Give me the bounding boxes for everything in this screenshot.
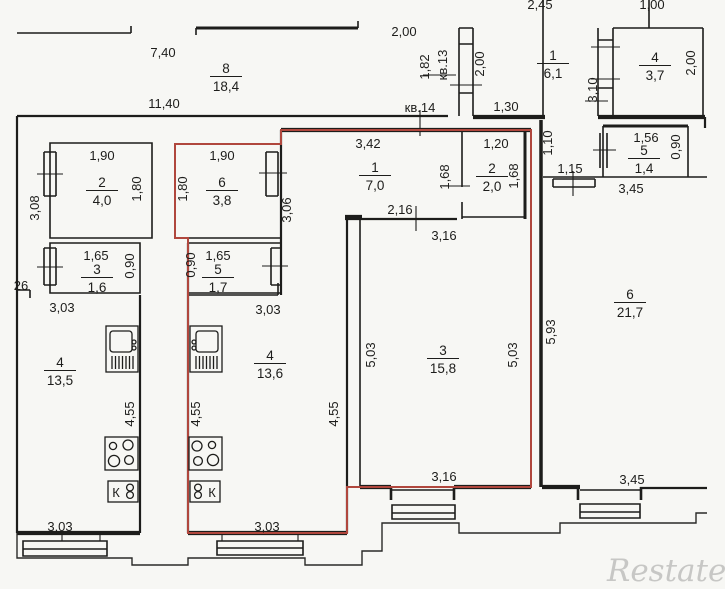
- room-area: 7,0: [366, 178, 385, 193]
- dimension-label: 3,06: [279, 197, 294, 222]
- dimension-label: 3,16: [431, 469, 456, 484]
- dimension-label: 1,68: [437, 164, 452, 189]
- dimension-label: 1,20: [483, 136, 508, 151]
- dimension-label: 3,03: [49, 300, 74, 315]
- dimension-label: 2,00: [472, 51, 487, 76]
- room-number: 1: [549, 48, 557, 63]
- dimension-label: 1,90: [89, 148, 114, 163]
- dimension-label: 3,45: [618, 181, 643, 196]
- floor-plan: 7,4011,402,002,451,00кв.141,301,901,903,…: [0, 0, 725, 589]
- room-area: 13,5: [47, 373, 73, 388]
- dimension-label: 2,00: [683, 50, 698, 75]
- room-area: 2,0: [483, 179, 502, 194]
- room-number: 8: [222, 61, 230, 76]
- room-number: 4: [651, 50, 659, 65]
- room-area: 6,1: [544, 66, 563, 81]
- room-number: 4: [56, 355, 64, 370]
- apartment-label-kv14: кв.14: [405, 100, 436, 115]
- dimension-label: 1,90: [209, 148, 234, 163]
- room-area: 15,8: [430, 361, 456, 376]
- room-number: 1: [371, 160, 379, 175]
- dimension-label: 3,16: [431, 228, 456, 243]
- room-number: 2: [98, 175, 106, 190]
- dimension-label: 2,16: [387, 202, 412, 217]
- watermark-text: Restate: [606, 553, 725, 589]
- apartment-label-kv13: кв.13: [435, 50, 450, 81]
- plan-background: [0, 0, 725, 589]
- dimension-label: 3,08: [27, 195, 42, 220]
- dimension-label: 1,80: [129, 176, 144, 201]
- room-number: 6: [626, 287, 634, 302]
- room-area: 21,7: [617, 305, 643, 320]
- room-number: 2: [488, 161, 496, 176]
- dimension-label: 1,65: [83, 248, 108, 263]
- dimension-label: 3,03: [47, 519, 72, 534]
- dimension-label: 4,55: [326, 401, 341, 426]
- dimension-label: 3,45: [619, 472, 644, 487]
- dimension-label: 4,55: [122, 401, 137, 426]
- dimension-label: 5,03: [363, 342, 378, 367]
- room-area: 3,7: [646, 68, 665, 83]
- dimension-label: 5,03: [505, 342, 520, 367]
- dimension-label: 1,68: [506, 163, 521, 188]
- dimension-label: 3,42: [355, 136, 380, 151]
- room-area: 3,8: [213, 193, 232, 208]
- dimension-label: 1,65: [205, 248, 230, 263]
- dimension-label: 1,10: [540, 130, 555, 155]
- room-number: 3: [439, 343, 447, 358]
- room-area: 18,4: [213, 79, 240, 94]
- room-number: 3: [93, 262, 101, 277]
- dimension-label: 4,55: [188, 401, 203, 426]
- dimension-label: 0,90: [183, 252, 198, 277]
- dimension-label: 11,40: [148, 96, 180, 111]
- floor-plan-svg: 7,4011,402,002,451,00кв.141,301,901,903,…: [0, 0, 725, 589]
- dimension-label: 0,90: [668, 134, 683, 159]
- room-number: 4: [266, 348, 274, 363]
- kitchen-sink-label: К: [112, 485, 120, 500]
- room-area: 13,6: [257, 366, 283, 381]
- dimension-label: 1,00: [639, 0, 664, 12]
- room-number: 5: [640, 143, 648, 158]
- room-area: 4,0: [93, 193, 112, 208]
- kitchen-sink-label: К: [208, 485, 216, 500]
- room-area: 1,7: [209, 280, 228, 295]
- dimension-label: 3,03: [254, 519, 279, 534]
- dimension-label: 1,80: [175, 176, 190, 201]
- dimension-label: 7,40: [150, 45, 175, 60]
- room-number: 5: [214, 262, 222, 277]
- dimension-label: 3,03: [255, 302, 280, 317]
- dimension-label: 3,10: [585, 77, 600, 102]
- dimension-label: 1,30: [493, 99, 518, 114]
- dimension-label: 2,45: [527, 0, 552, 12]
- dimension-label: 0,90: [122, 253, 137, 278]
- room-area: 1,6: [88, 280, 107, 295]
- room-number: 6: [218, 175, 226, 190]
- dimension-label: 26: [14, 278, 28, 293]
- dimension-label: 5,93: [543, 319, 558, 344]
- room-area: 1,4: [635, 161, 654, 176]
- dimension-label: 1,15: [557, 161, 582, 176]
- dimension-label: 1,82: [417, 54, 432, 79]
- dimension-label: 2,00: [391, 24, 416, 39]
